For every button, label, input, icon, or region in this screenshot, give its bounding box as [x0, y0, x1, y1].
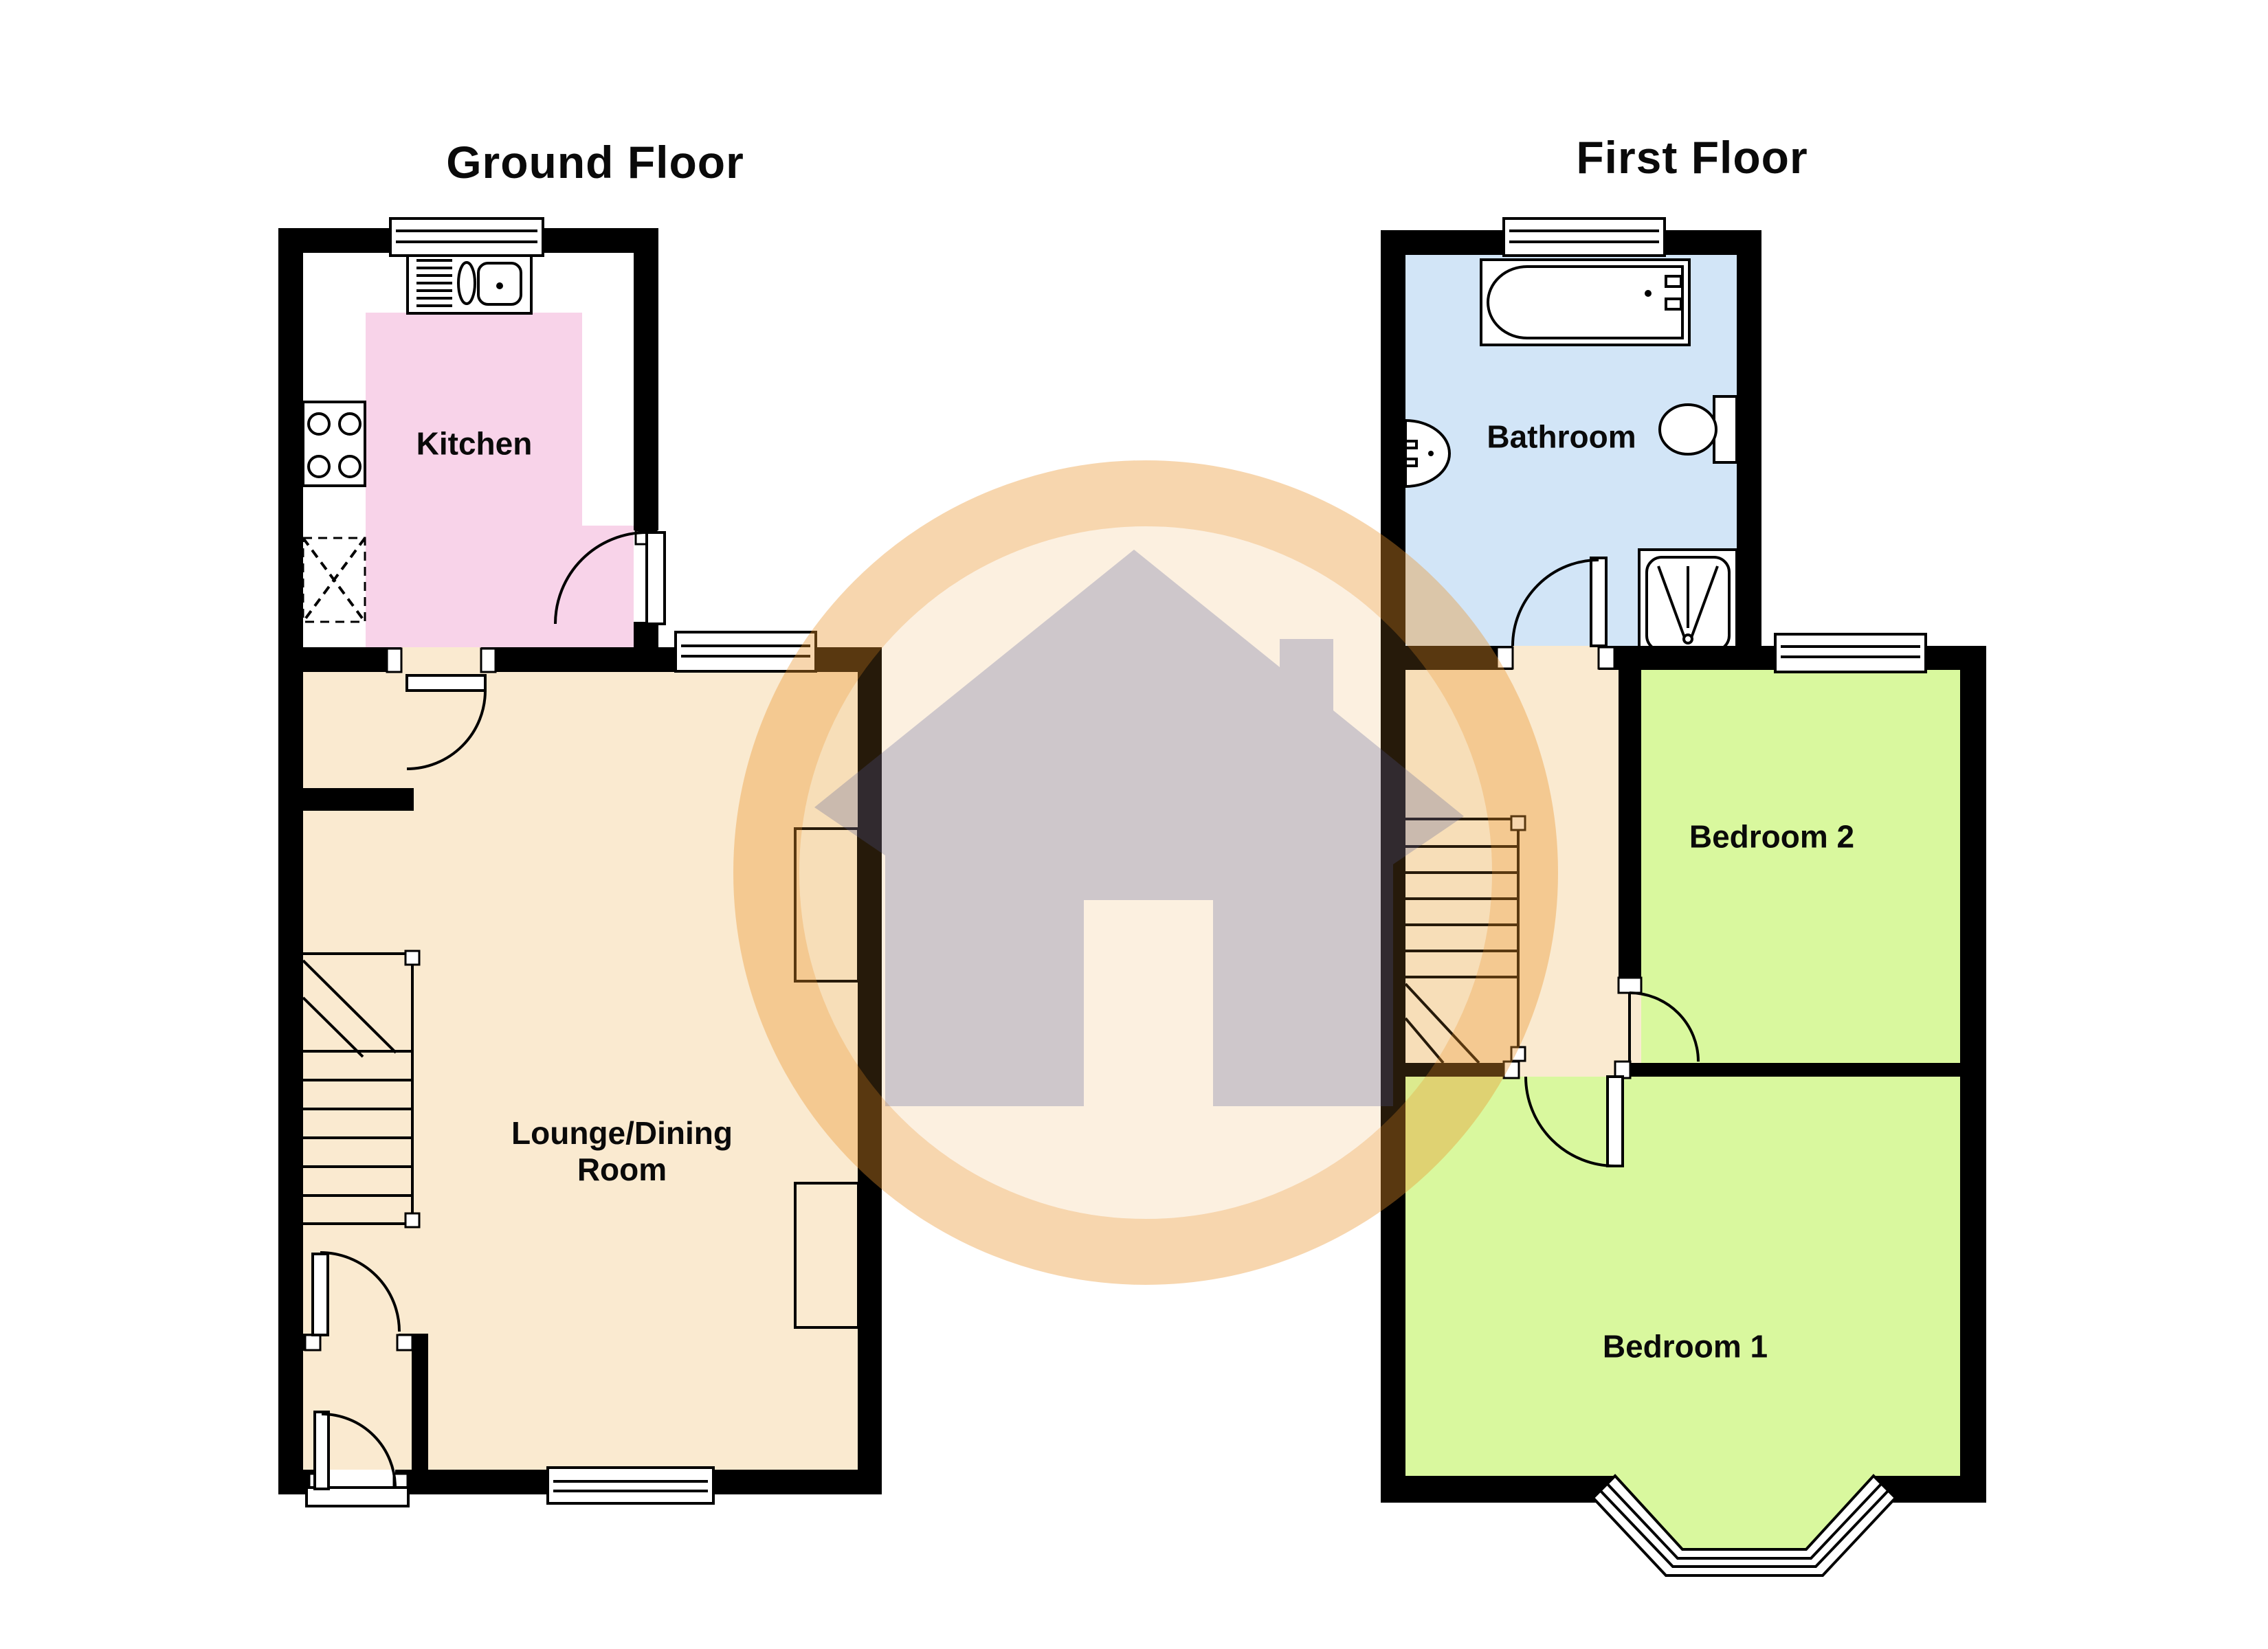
floorplan-drawing — [0, 0, 2268, 1649]
bedroom1-doorway — [1519, 1063, 1615, 1077]
window-icon — [548, 1468, 713, 1503]
bathtub-icon — [1481, 260, 1689, 345]
bedroom1-label: Bedroom 1 — [1603, 1329, 1768, 1365]
window-icon — [390, 218, 543, 256]
hob-icon — [303, 402, 365, 486]
bedroom2-floor — [1641, 670, 1960, 1063]
window-icon — [1504, 218, 1665, 256]
bathroom-doorway — [1513, 646, 1599, 670]
shower-icon — [1639, 550, 1737, 658]
kitchen-label: Kitchen — [416, 426, 533, 462]
window-icon — [1775, 634, 1926, 672]
agency-watermark — [766, 493, 1525, 1252]
floorplan-page: Ground Floor First Floor Kitchen Lounge/… — [0, 0, 2268, 1649]
kitchen-lounge-doorway — [401, 647, 481, 672]
appliance-icon — [303, 538, 365, 622]
bedroom1-floor — [1405, 1077, 1960, 1476]
first-floor-title: First Floor — [1576, 132, 1808, 184]
ground-floor-title: Ground Floor — [446, 137, 744, 189]
bathroom-label: Bathroom — [1487, 419, 1636, 456]
bedroom2-label: Bedroom 2 — [1689, 819, 1854, 855]
lounge-label: Lounge/Dining Room — [471, 1115, 773, 1188]
